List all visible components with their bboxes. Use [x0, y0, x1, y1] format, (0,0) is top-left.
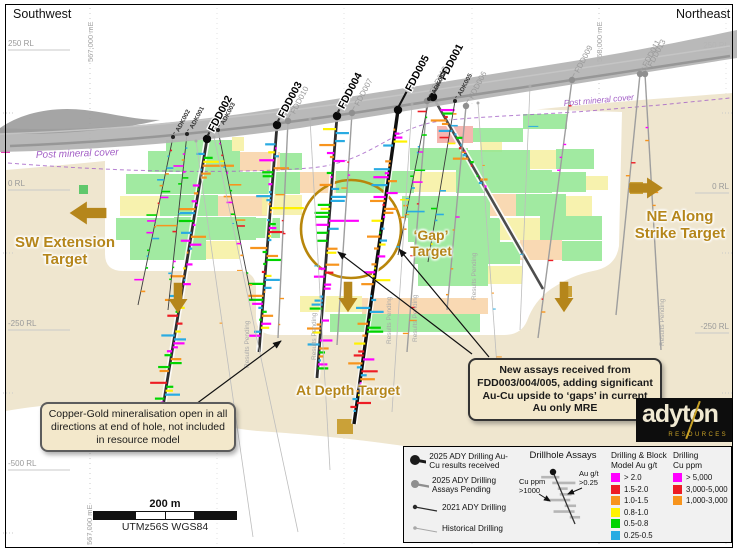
svg-text:-250 RL: -250 RL — [701, 322, 730, 331]
model-block — [130, 240, 206, 260]
model-block — [516, 194, 566, 216]
logo-subtitle: RESOURCES — [668, 432, 728, 438]
svg-text:0 RL: 0 RL — [712, 182, 729, 191]
legend-drilling-type-row: 2025 ADY Drilling Au-Cu results received — [409, 452, 515, 471]
color-swatch — [611, 473, 620, 482]
legend-swatch-row: 0.5-0.8 — [611, 519, 671, 528]
scale-bar-graphic — [93, 511, 237, 520]
collar-dot — [203, 135, 211, 143]
model-block — [218, 196, 268, 216]
logo-wordmark: adyton — [642, 400, 718, 429]
target-at-depth: At Depth Target — [270, 382, 426, 398]
collar-dot — [411, 103, 414, 106]
collar-dot — [477, 102, 480, 105]
swatch-label: 1.5-2.0 — [624, 485, 648, 494]
adyton-logo: adyton RESOURCES — [636, 398, 733, 442]
legend-drilling-type-row: 2025 ADY Drilling Assays Pending — [409, 476, 515, 495]
legend-drilling-type-row: Historical Drilling — [409, 521, 515, 537]
legend-swatch-row: 0.8-1.0 — [611, 508, 671, 517]
model-block — [116, 218, 174, 240]
target-sw-extension: SW Extension Target — [8, 234, 122, 269]
results-pending-label: Results Pending — [386, 296, 393, 344]
cross-section-figure: 250 RL0 RL-250 RL-500 RL250 RL0 RL-250 R… — [0, 0, 737, 552]
results-pending-label: Results Pending — [471, 252, 478, 300]
model-block — [79, 185, 88, 194]
model-block — [126, 174, 182, 194]
legend-swatch-row: 1.0-1.5 — [611, 496, 671, 505]
model-block — [120, 196, 160, 216]
collar-dot — [213, 136, 216, 139]
swatch-label: 3,000-5,000 — [686, 485, 728, 494]
legend: 2025 ADY Drilling Au-Cu results received… — [403, 446, 732, 543]
results-pending-label: Results Pending — [244, 320, 251, 368]
color-swatch — [611, 519, 620, 528]
model-block — [402, 196, 490, 218]
scale-bar-crs: UTMz56S WGS84 — [93, 521, 237, 533]
collar-dot — [333, 112, 341, 120]
legend-drilling-type-label: 2025 ADY Drilling Assays Pending — [432, 476, 515, 495]
legend-drilling-type-label: 2021 ADY Drilling — [442, 503, 506, 512]
swatch-label: 0.5-0.8 — [624, 519, 648, 528]
swatch-label: 0.25-0.5 — [624, 531, 653, 540]
legend-swatch-row: 0.25-0.5 — [611, 531, 671, 540]
legend-drilling-types: 2025 ADY Drilling Au-Cu results received… — [409, 452, 515, 537]
model-block — [232, 137, 244, 151]
color-swatch — [611, 496, 620, 505]
legend-swatch-row: 1,000-3,000 — [673, 496, 731, 505]
swatch-label: 1.0-1.5 — [624, 496, 648, 505]
collar-dot — [529, 85, 532, 88]
drillhole-assay-diagram: Cu ppm>1000Au g/t>0.25 — [516, 462, 610, 534]
legend-swatch-row: > 2.0 — [611, 473, 671, 482]
color-swatch — [611, 531, 620, 540]
collar-dot — [569, 77, 575, 83]
collar-dot — [642, 71, 648, 77]
svg-text:-250 RL: -250 RL — [8, 319, 37, 328]
easting-label: 567,000 mE — [86, 22, 95, 62]
model-block — [540, 216, 602, 240]
easting-label: 568,000 mE — [595, 22, 604, 62]
legend-au-title: Drilling & Block Model Au g/t — [611, 451, 671, 470]
color-swatch — [611, 508, 620, 517]
annotation-new-assays: New assays received from FDD003/004/005,… — [468, 358, 662, 421]
model-block — [488, 266, 522, 284]
collar-dot — [463, 103, 469, 109]
model-block — [330, 314, 480, 332]
scale-bar-label: 200 m — [93, 498, 237, 510]
model-block — [566, 196, 592, 216]
collar-dot — [195, 140, 198, 143]
legend-drilling-type-label: Historical Drilling — [442, 524, 503, 533]
swatch-label: > 2.0 — [624, 473, 642, 482]
swatch-label: 1,000-3,000 — [686, 496, 728, 505]
svg-text:-500 RL: -500 RL — [8, 459, 37, 468]
color-swatch — [673, 473, 682, 482]
legend-cu-scale: Drilling Cu ppm > 5,0003,000-5,0001,000-… — [673, 451, 731, 508]
legend-drillhole-assays: Drillhole Assays Cu ppm>1000Au g/t>0.25 — [516, 450, 610, 539]
legend-swatch-row: 3,000-5,000 — [673, 485, 731, 494]
legend-drilling-type-row: 2021 ADY Drilling — [409, 500, 515, 516]
color-swatch — [611, 485, 620, 494]
collar-dot — [273, 121, 281, 129]
target-gap: ‘Gap’ Target — [395, 227, 467, 259]
legend-drilling-type-label: 2025 ADY Drilling Au-Cu results received — [429, 452, 515, 471]
color-swatch — [673, 485, 682, 494]
color-swatch — [673, 496, 682, 505]
results-pending-label: Results Pending — [412, 294, 419, 342]
model-block — [456, 170, 552, 193]
svg-text:0 RL: 0 RL — [8, 179, 25, 188]
legend-swatch-row: > 5,000 — [673, 473, 731, 482]
label-northeast: Northeast — [676, 7, 730, 21]
collar-dot — [216, 128, 220, 132]
model-block — [562, 241, 602, 261]
scale-bar: 200 m UTMz56S WGS84 — [93, 498, 237, 533]
legend-swatch-row: 1.5-2.0 — [611, 485, 671, 494]
collar-dot — [309, 118, 312, 121]
collar-dot — [394, 106, 402, 114]
legend-au-scale: Drilling & Block Model Au g/t > 2.01.5-2… — [611, 451, 671, 542]
legend-assays-title: Drillhole Assays — [516, 450, 610, 461]
collar-dot — [171, 135, 175, 139]
model-block — [337, 419, 353, 434]
svg-text:250 RL: 250 RL — [8, 39, 34, 48]
legend-cu-title: Drilling Cu ppm — [673, 451, 731, 470]
collar-dot — [427, 97, 431, 101]
target-ne-along-strike: NE Along Strike Target — [626, 208, 734, 243]
model-block — [530, 150, 556, 169]
model-block — [468, 150, 530, 170]
collar-dot — [185, 132, 189, 136]
annotation-open-mineralisation: Copper-Gold mineralisation open in all d… — [40, 402, 236, 452]
label-southwest: Southwest — [13, 7, 71, 21]
assay-cu-label: Cu ppm>1000 — [519, 477, 545, 495]
collar-dot — [349, 110, 355, 116]
results-pending-label: Results Pending — [311, 312, 318, 360]
assay-au-label: Au g/t>0.25 — [579, 469, 600, 487]
model-block — [586, 176, 608, 190]
collar-dot — [285, 118, 291, 124]
swatch-label: 0.8-1.0 — [624, 508, 648, 517]
collar-dot — [453, 99, 457, 103]
results-pending-label: Results Pending — [659, 298, 666, 346]
swatch-label: > 5,000 — [686, 473, 712, 482]
